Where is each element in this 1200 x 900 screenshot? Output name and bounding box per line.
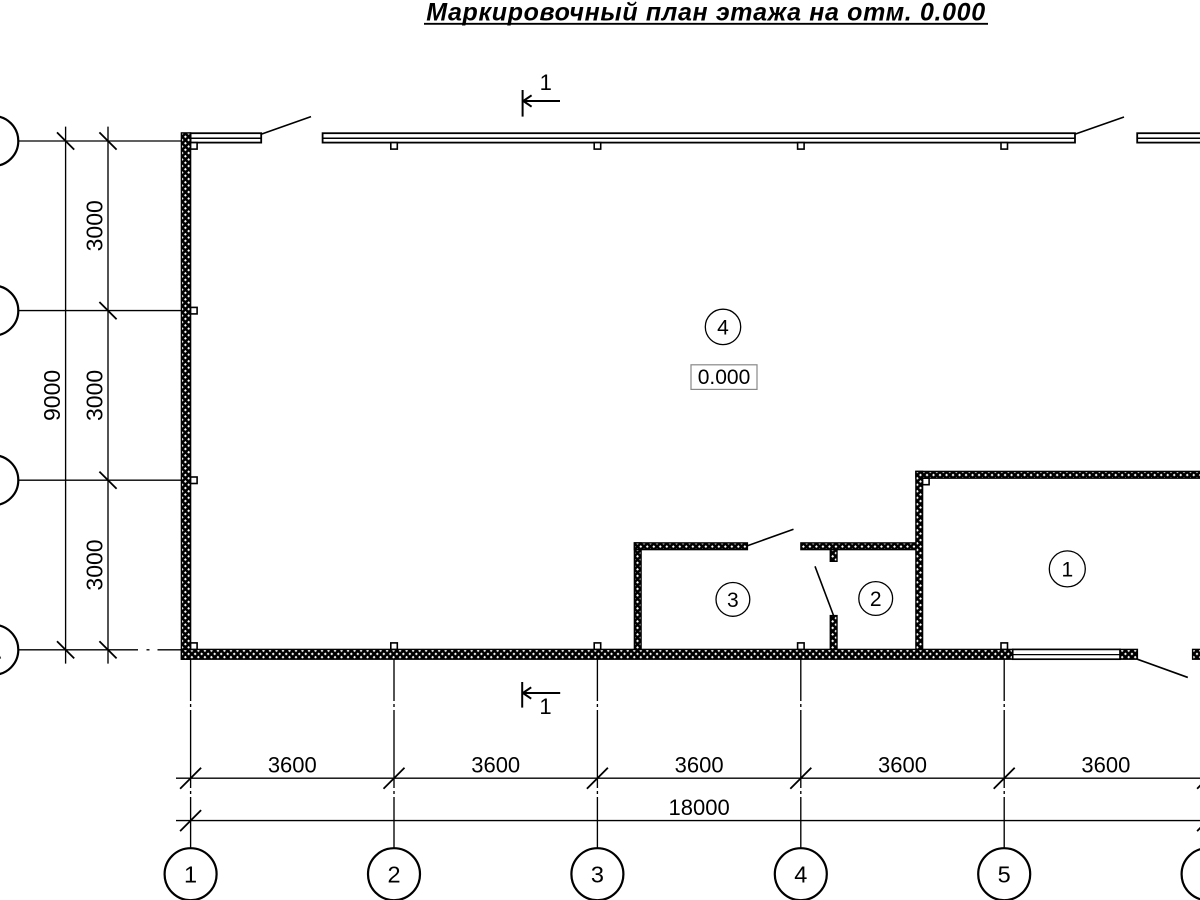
svg-text:9000: 9000 xyxy=(39,370,65,421)
svg-text:3000: 3000 xyxy=(82,539,108,590)
svg-text:4: 4 xyxy=(717,316,729,339)
svg-text:2: 2 xyxy=(870,588,882,611)
svg-text:3600: 3600 xyxy=(1081,753,1130,778)
svg-text:18000: 18000 xyxy=(669,795,730,820)
svg-text:3000: 3000 xyxy=(82,200,108,251)
svg-text:4: 4 xyxy=(794,862,807,888)
svg-text:3600: 3600 xyxy=(878,753,927,778)
svg-text:2: 2 xyxy=(387,862,400,888)
svg-text:0.000: 0.000 xyxy=(698,366,751,389)
svg-text:5: 5 xyxy=(998,862,1011,888)
svg-text:1: 1 xyxy=(539,694,551,719)
svg-text:1: 1 xyxy=(540,70,552,95)
svg-text:3600: 3600 xyxy=(675,753,724,778)
svg-text:Маркировочный план этажа на от: Маркировочный план этажа на отм. 0.000 xyxy=(426,0,986,27)
svg-text:Б: Б xyxy=(0,468,1,494)
svg-text:1: 1 xyxy=(1061,558,1073,581)
svg-text:3: 3 xyxy=(591,862,604,888)
svg-text:3600: 3600 xyxy=(268,753,317,778)
svg-text:3000: 3000 xyxy=(82,370,108,421)
svg-text:1: 1 xyxy=(184,862,197,888)
svg-text:В: В xyxy=(0,298,1,324)
svg-text:3600: 3600 xyxy=(471,753,520,778)
svg-text:3: 3 xyxy=(727,589,739,612)
